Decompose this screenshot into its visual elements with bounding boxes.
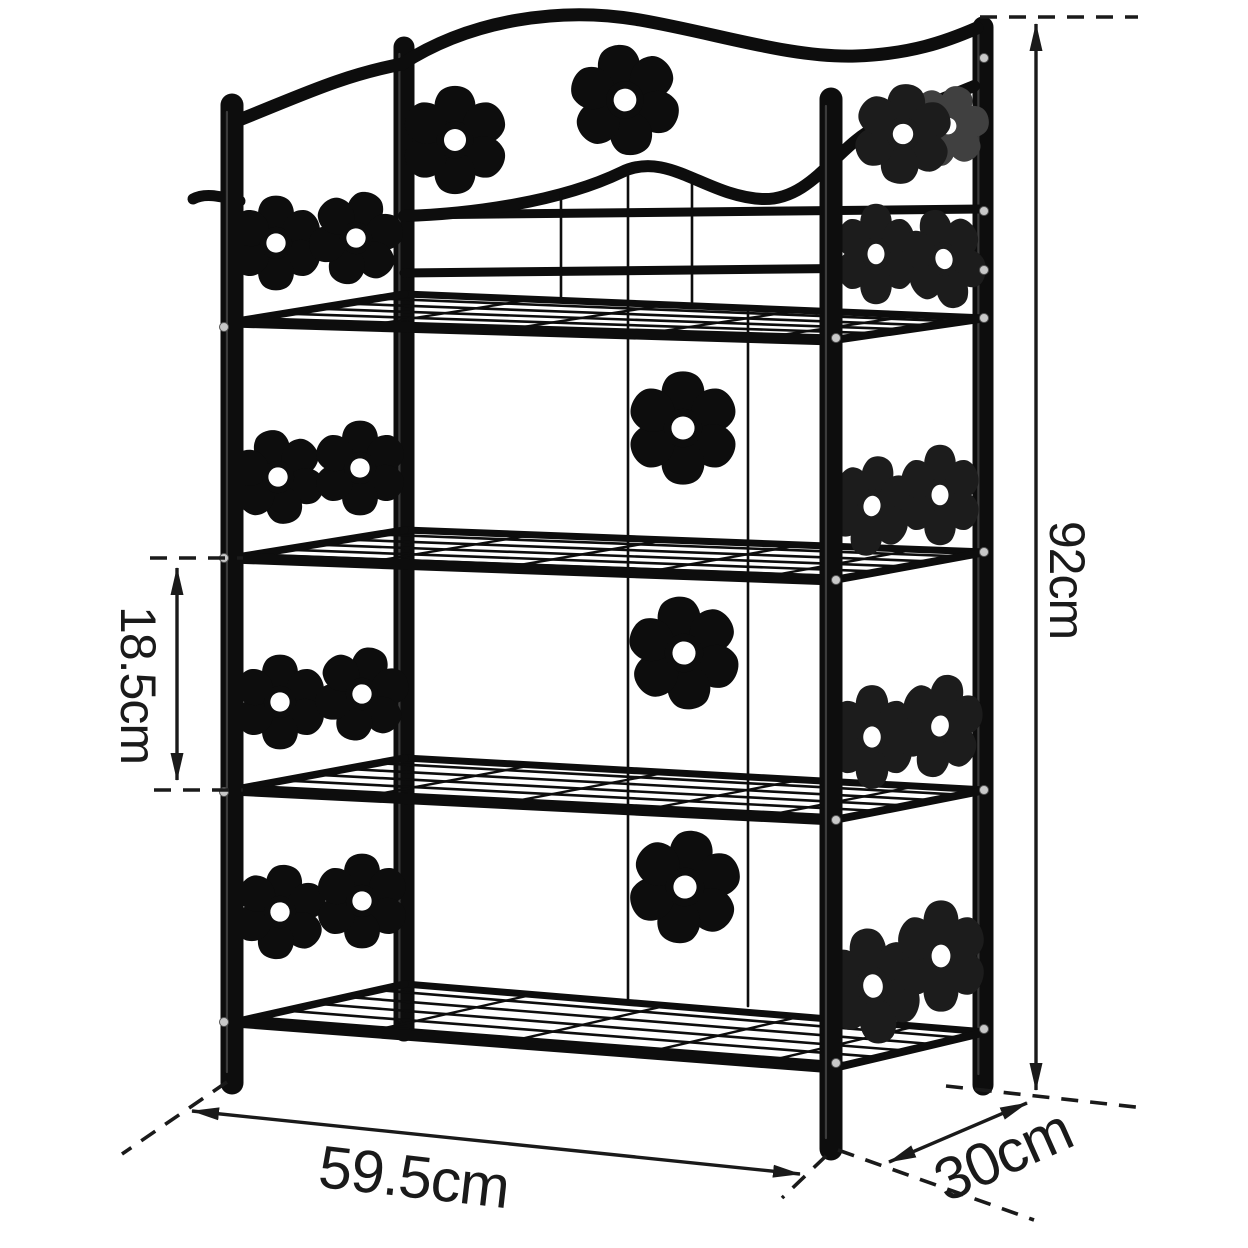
width-left-extension-line [122,1082,227,1154]
flower-cutout-icon [896,445,984,545]
spacing-dimension-label: 18.5cm [110,606,166,764]
bolt [832,1059,841,1068]
flower-cutout-icon [230,655,330,750]
height-dimension-label: 92cm [1039,521,1095,639]
dimension-diagram: 92cm 18.5cm 59.5cm 30cm [0,0,1248,1248]
shelf-side-rail-left [235,984,405,1022]
flower-cutout-icon [558,35,693,165]
bolt [832,576,841,585]
bolt [832,816,841,825]
bolt [980,314,989,323]
bolt [832,334,841,343]
width-dimension-label: 59.5cm [315,1133,512,1221]
arch-flower-cutouts [398,35,1003,194]
flower-cutout-icon [398,86,512,194]
bolt [980,548,989,557]
bolt [980,786,989,795]
flower-cutout-icon [616,821,753,953]
shelf-side-rail-right [834,552,986,580]
bolt [980,1025,989,1034]
bolt [220,323,229,332]
bolt [980,54,989,63]
dimension-labels: 92cm 18.5cm 59.5cm 30cm [110,521,1095,1221]
shelf-side-rail-right [834,790,986,820]
bolt [980,207,989,216]
flower-cutout-icon [623,371,743,484]
width-right-extension-line [782,1156,826,1198]
flower-cutout-icon [617,589,751,718]
bolt [980,266,989,275]
bolt [220,1018,229,1027]
product-image-canvas: 92cm 18.5cm 59.5cm 30cm [0,0,1248,1248]
